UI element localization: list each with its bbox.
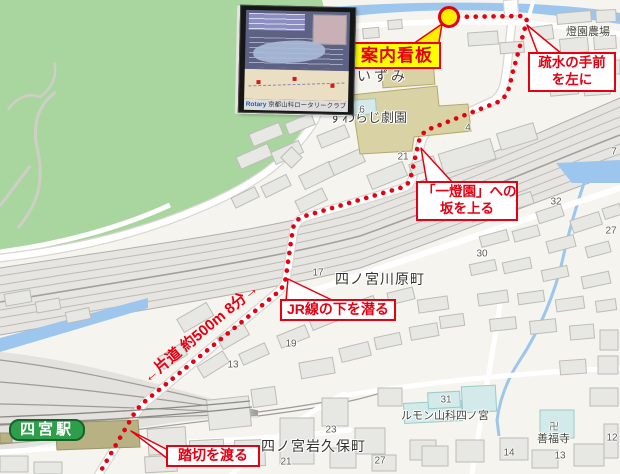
place-label-toen-farm: 燈園農場	[566, 23, 610, 39]
callout-annai-kanban: 案内看板	[353, 42, 441, 69]
signboard-minimap	[244, 69, 349, 101]
signboard-minimap-marker	[256, 80, 260, 84]
signboard-text-panel	[245, 10, 350, 71]
house-number: 32	[550, 197, 561, 208]
house-number: 12	[606, 433, 617, 444]
house-number: 30	[476, 249, 487, 260]
signboard-title-block	[249, 13, 305, 31]
route-map-image: いずみ すわらじ劇園 四ノ宮川原町 四ノ宮岩久保町 ルモン山科四ノ宮 善福寺 卍…	[0, 0, 620, 474]
callout-itoen-line2: 坂を上る	[440, 201, 494, 216]
signboard-minimap-marker	[330, 84, 334, 88]
signboard-minimap-marker	[293, 77, 297, 81]
signboard-photo: Rotary 京都山科ロータリークラブ	[238, 5, 356, 116]
callout-sosui-line2: を左に	[552, 72, 593, 87]
callout-itoen-slope: 「一燈園」への 坂を上る	[416, 181, 518, 221]
house-number: 31	[440, 395, 451, 406]
place-label-iwakubocho: 四ノ宮岩久保町	[261, 436, 366, 456]
house-number: 21	[280, 457, 291, 468]
house-number: 14	[503, 448, 514, 459]
rotary-logo: Rotary	[246, 101, 267, 108]
signboard-location-marker	[440, 8, 459, 27]
callout-itoen-line1: 「一燈園」への	[422, 184, 517, 199]
house-number: 7	[611, 147, 617, 158]
signboard-caption-text: 京都山科ロータリークラブ	[266, 101, 346, 110]
callout-annai-text: 案内看板	[361, 46, 433, 65]
house-number: 27	[374, 456, 385, 467]
house-number: 13	[554, 451, 565, 462]
place-label-lumon: ルモン山科四ノ宮	[401, 407, 489, 423]
callout-fumikiri-text: 踏切を渡る	[178, 447, 248, 463]
callout-fumikiri: 踏切を渡る	[166, 445, 260, 467]
station-badge-shinomiya: 四宮駅	[9, 419, 85, 441]
callout-sosui-line1: 疏水の手前	[538, 55, 606, 70]
callout-jr-underpass: JR線の下を潜る	[280, 299, 396, 321]
place-label-kawaramachi: 四ノ宮川原町	[335, 269, 425, 289]
house-number: 19	[285, 339, 296, 350]
house-number: 23	[325, 425, 336, 436]
house-number: 21	[397, 152, 408, 163]
temple-manji-icon: 卍	[549, 418, 559, 433]
callout-sosui: 疏水の手前 を左に	[528, 52, 616, 92]
signboard-inset-picture	[312, 14, 347, 45]
house-number: 27	[605, 226, 616, 237]
house-number: 13	[227, 360, 238, 371]
callout-jr-text: JR線の下を潜る	[287, 301, 389, 317]
house-number: 6	[359, 105, 365, 116]
house-number: 4	[465, 123, 471, 134]
house-number: 17	[312, 268, 323, 279]
